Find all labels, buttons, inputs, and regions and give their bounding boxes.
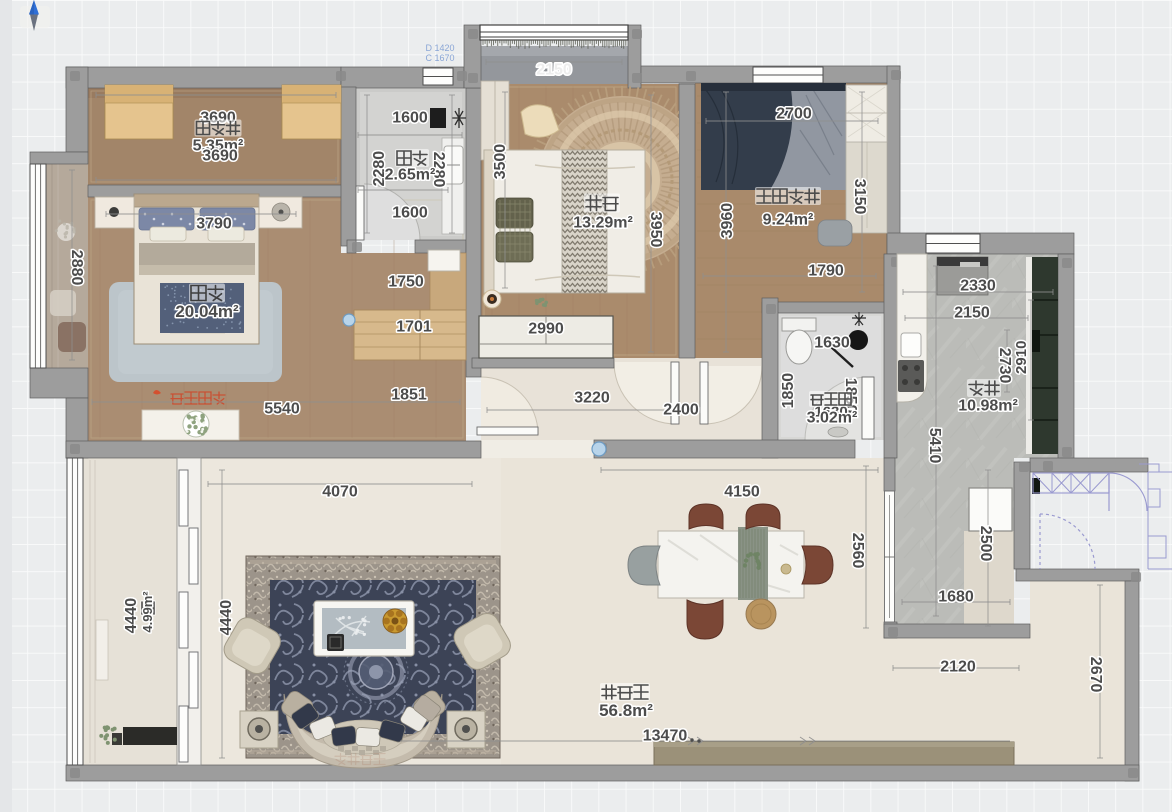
svg-text:2670: 2670 xyxy=(1087,657,1104,693)
svg-text:3220: 3220 xyxy=(574,390,610,407)
svg-text:3500: 3500 xyxy=(492,144,509,180)
svg-text:2700: 2700 xyxy=(776,106,812,123)
svg-text:3690: 3690 xyxy=(202,148,238,165)
svg-text:1701: 1701 xyxy=(396,319,432,336)
svg-text:D 1420: D 1420 xyxy=(425,43,454,53)
svg-text:4440: 4440 xyxy=(218,600,235,636)
svg-text:20.04m²: 20.04m² xyxy=(175,302,239,321)
svg-text:3.02m²: 3.02m² xyxy=(807,410,858,427)
svg-text:9.24m²: 9.24m² xyxy=(763,212,814,229)
svg-text:2500: 2500 xyxy=(977,526,994,562)
svg-text:2560: 2560 xyxy=(849,533,866,569)
svg-text:1680: 1680 xyxy=(938,589,974,606)
svg-text:2.65m²: 2.65m² xyxy=(385,167,436,184)
svg-text:4.99m²: 4.99m² xyxy=(140,591,155,633)
svg-text:2730: 2730 xyxy=(996,348,1013,384)
svg-text:5410: 5410 xyxy=(926,428,943,464)
svg-text:2150: 2150 xyxy=(536,62,572,79)
svg-text:1850: 1850 xyxy=(780,373,797,409)
svg-text:2120: 2120 xyxy=(940,659,976,676)
svg-text:1630: 1630 xyxy=(814,335,850,352)
svg-text:1790: 1790 xyxy=(808,263,844,280)
svg-text:2910: 2910 xyxy=(1013,341,1030,374)
svg-text:1750: 1750 xyxy=(388,274,424,291)
svg-text:13470: 13470 xyxy=(643,728,688,745)
svg-text:1600: 1600 xyxy=(392,110,428,127)
svg-text:3790: 3790 xyxy=(196,216,232,233)
svg-text:2880: 2880 xyxy=(68,250,85,286)
svg-text:1851: 1851 xyxy=(391,387,427,404)
svg-text:2990: 2990 xyxy=(528,321,564,338)
svg-text:4070: 4070 xyxy=(322,484,358,501)
svg-text:2400: 2400 xyxy=(663,402,699,419)
svg-text:C 1670: C 1670 xyxy=(425,53,454,63)
svg-text:56.8m²: 56.8m² xyxy=(599,701,653,720)
svg-text:1600: 1600 xyxy=(392,205,428,222)
svg-text:3960: 3960 xyxy=(719,203,736,239)
svg-text:2330: 2330 xyxy=(960,278,996,295)
svg-text:5540: 5540 xyxy=(264,401,300,418)
svg-text:3150: 3150 xyxy=(851,179,868,215)
svg-text:10.98m²: 10.98m² xyxy=(958,398,1018,415)
svg-text:13.29m²: 13.29m² xyxy=(573,215,633,232)
svg-text:4440: 4440 xyxy=(123,598,140,634)
svg-text:2150: 2150 xyxy=(954,305,990,322)
svg-text:3950: 3950 xyxy=(647,212,664,248)
svg-text:4150: 4150 xyxy=(724,484,760,501)
